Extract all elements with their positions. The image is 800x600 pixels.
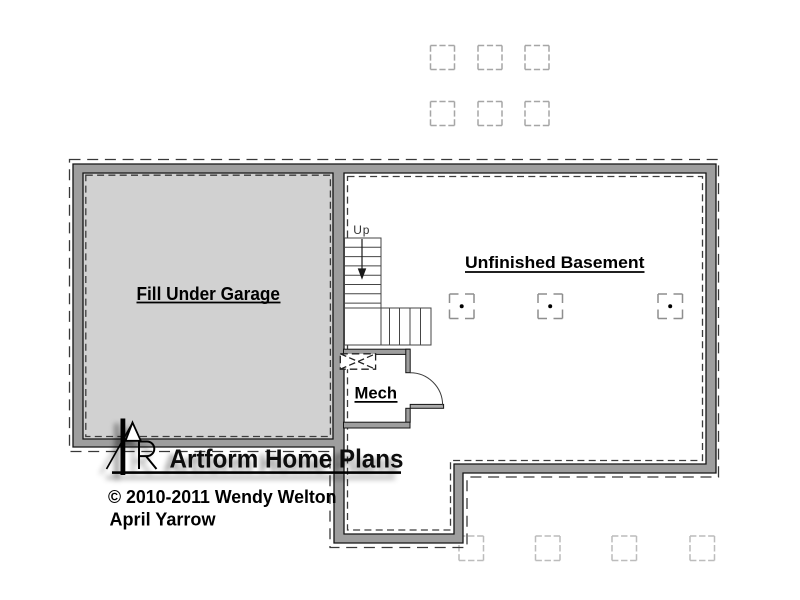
svg-text:Artform Home Plans: Artform Home Plans	[170, 444, 404, 474]
svg-text:Up: Up	[353, 223, 370, 237]
svg-text:© 2010-2011 Wendy Welton: © 2010-2011 Wendy Welton	[108, 487, 337, 507]
svg-text:April Yarrow: April Yarrow	[110, 510, 217, 530]
svg-text:Unfinished Basement: Unfinished Basement	[465, 253, 645, 272]
svg-text:Mech: Mech	[355, 384, 398, 403]
svg-text:Fill Under Garage: Fill Under Garage	[137, 284, 281, 304]
